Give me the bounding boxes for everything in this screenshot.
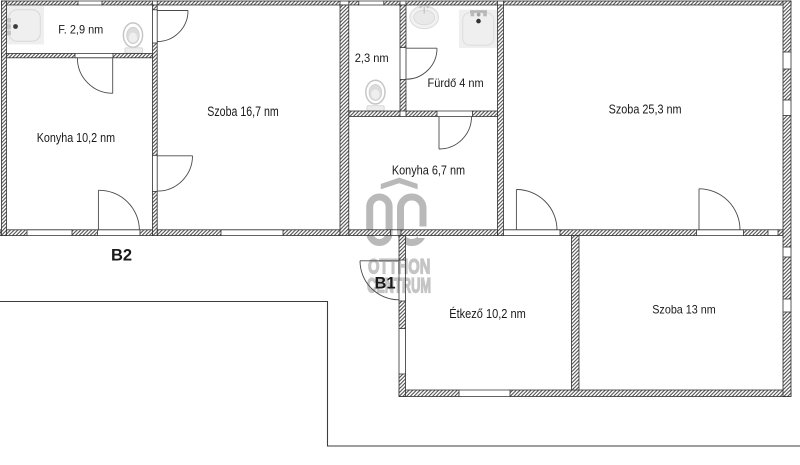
svg-text:2,3 nm: 2,3 nm [355, 51, 389, 65]
svg-text:Étkező 10,2 nm: Étkező 10,2 nm [449, 306, 526, 321]
svg-text:Szoba 25,3 nm: Szoba 25,3 nm [609, 101, 682, 116]
svg-text:Konyha 6,7 nm: Konyha 6,7 nm [392, 163, 465, 177]
svg-text:B1: B1 [374, 275, 395, 293]
svg-text:B2: B2 [111, 246, 132, 264]
svg-text:Szoba 16,7 nm: Szoba 16,7 nm [207, 104, 278, 119]
svg-text:F. 2,9 nm: F. 2,9 nm [58, 25, 103, 37]
svg-text:Szoba 13 nm: Szoba 13 nm [652, 303, 716, 317]
svg-text:Fürdő 4 nm: Fürdő 4 nm [428, 76, 484, 90]
svg-text:Konyha 10,2 nm: Konyha 10,2 nm [37, 130, 115, 145]
